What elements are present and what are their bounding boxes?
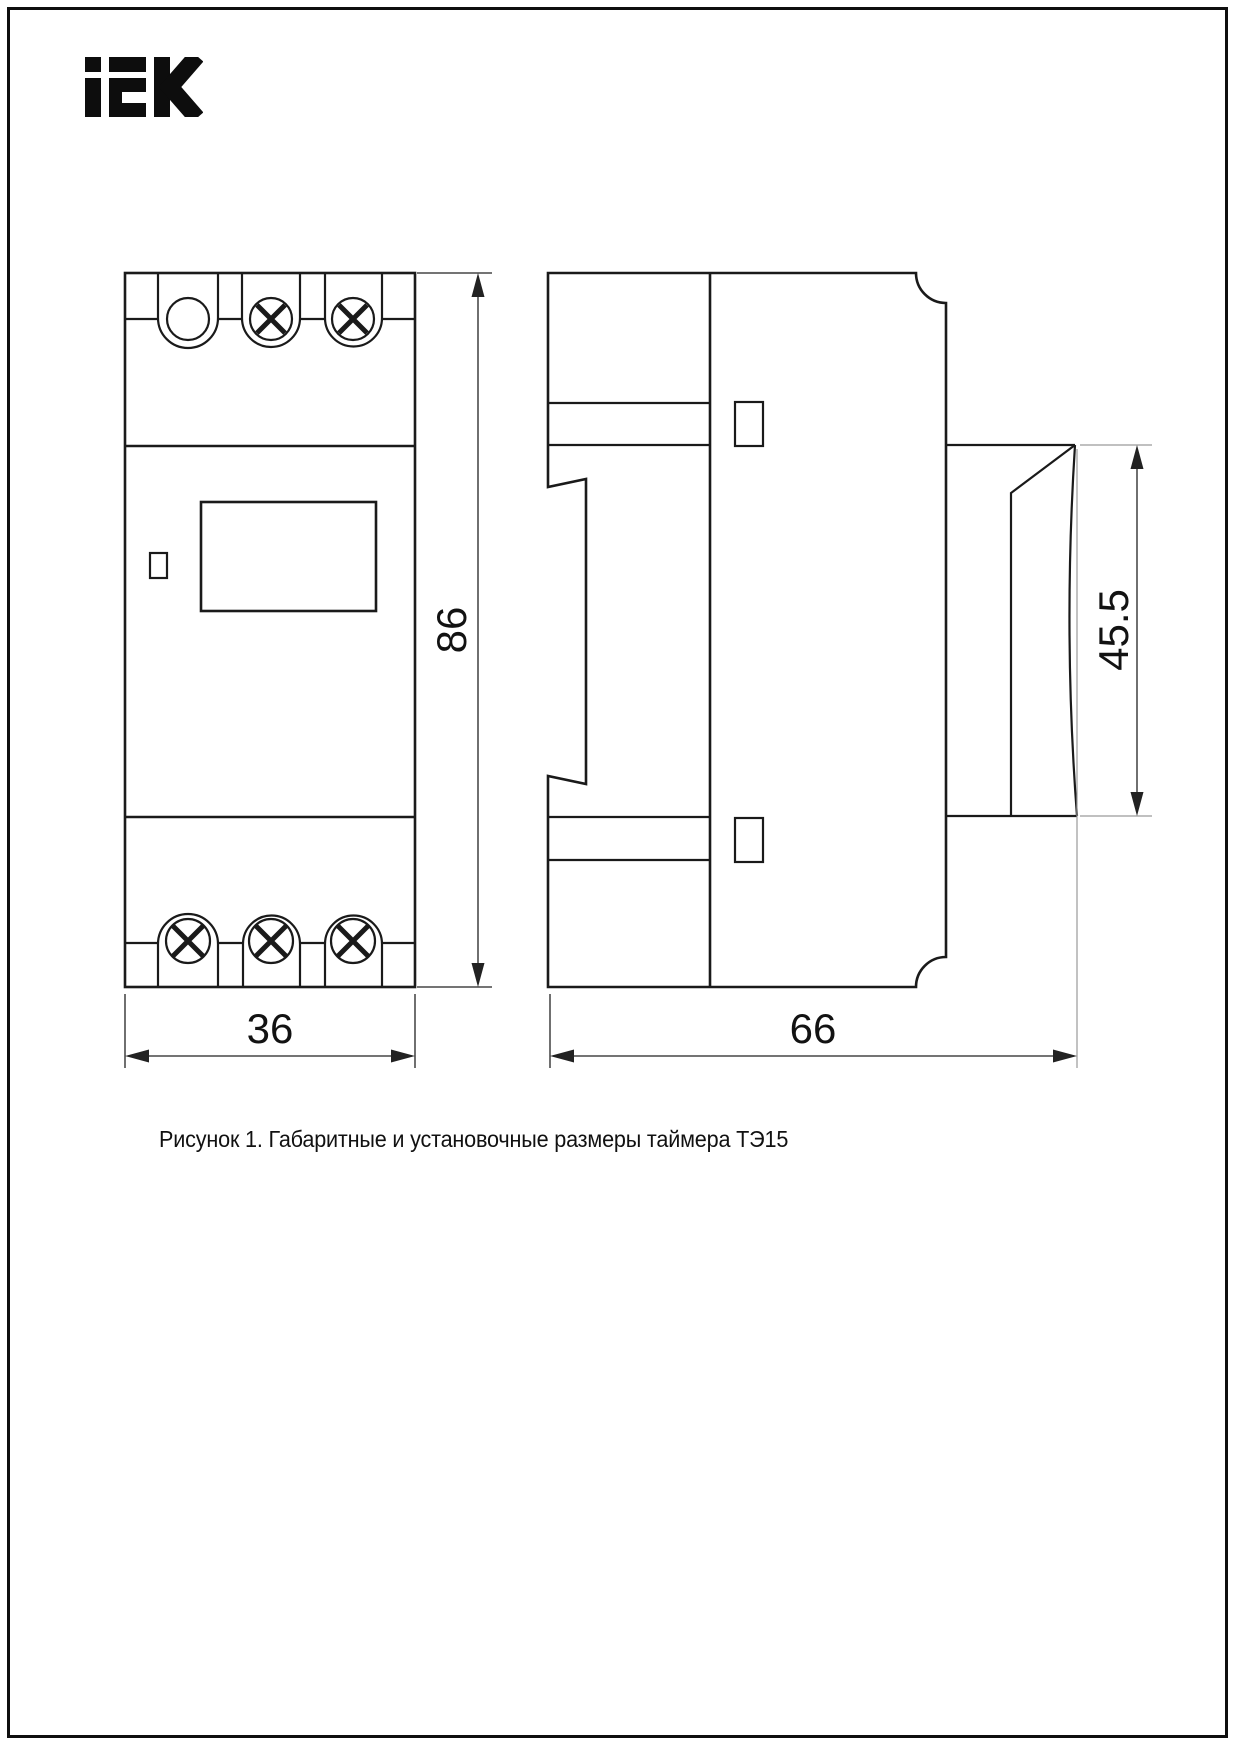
dimension-86: 86	[428, 273, 485, 987]
screw-cross-icon	[256, 926, 286, 956]
screw-cross-icon	[257, 305, 285, 333]
din-rail-upper-band	[548, 403, 710, 445]
dimension-45-5: 45.5	[1090, 445, 1144, 816]
arrowhead-down-icon	[472, 963, 485, 987]
side-body-outline	[548, 273, 946, 987]
page: { "page": { "background": "#ffffff", "bo…	[0, 0, 1238, 1747]
set-button	[150, 553, 167, 578]
arrowhead-right-icon	[1053, 1050, 1077, 1063]
led-hole-icon	[167, 298, 209, 340]
terminal-slot	[158, 273, 218, 348]
arrowhead-down-icon	[1131, 792, 1144, 816]
technical-drawing: 86 36 66 45.5	[0, 0, 1238, 1747]
front-view	[125, 273, 415, 987]
arrowhead-right-icon	[391, 1050, 415, 1063]
screw-cross-icon	[339, 305, 367, 333]
front-cover-inner-edge	[1011, 445, 1075, 816]
arrowhead-left-icon	[550, 1050, 574, 1063]
arrowhead-up-icon	[1131, 445, 1144, 469]
arrowhead-left-icon	[125, 1050, 149, 1063]
terminal-slot	[242, 273, 300, 347]
arrowhead-up-icon	[472, 273, 485, 297]
side-view	[548, 273, 1077, 987]
lcd-display	[201, 502, 376, 611]
screw-cross-icon	[338, 926, 368, 956]
dimension-label-45-5: 45.5	[1090, 589, 1137, 671]
dimension-label-66: 66	[790, 1005, 837, 1052]
dimension-66: 66	[550, 1005, 1077, 1063]
mounting-lug	[735, 402, 763, 446]
figure-caption: Рисунок 1. Габаритные и установочные раз…	[159, 1126, 788, 1153]
dimension-36: 36	[125, 1005, 415, 1063]
front-cover-curved-face	[1069, 445, 1077, 816]
dimension-label-36: 36	[247, 1005, 294, 1052]
screw-cross-icon	[173, 926, 203, 956]
din-rail-lower-band	[548, 817, 710, 860]
front-body-outline	[125, 273, 415, 987]
mounting-lug	[735, 818, 763, 862]
dimension-label-86: 86	[428, 607, 475, 654]
